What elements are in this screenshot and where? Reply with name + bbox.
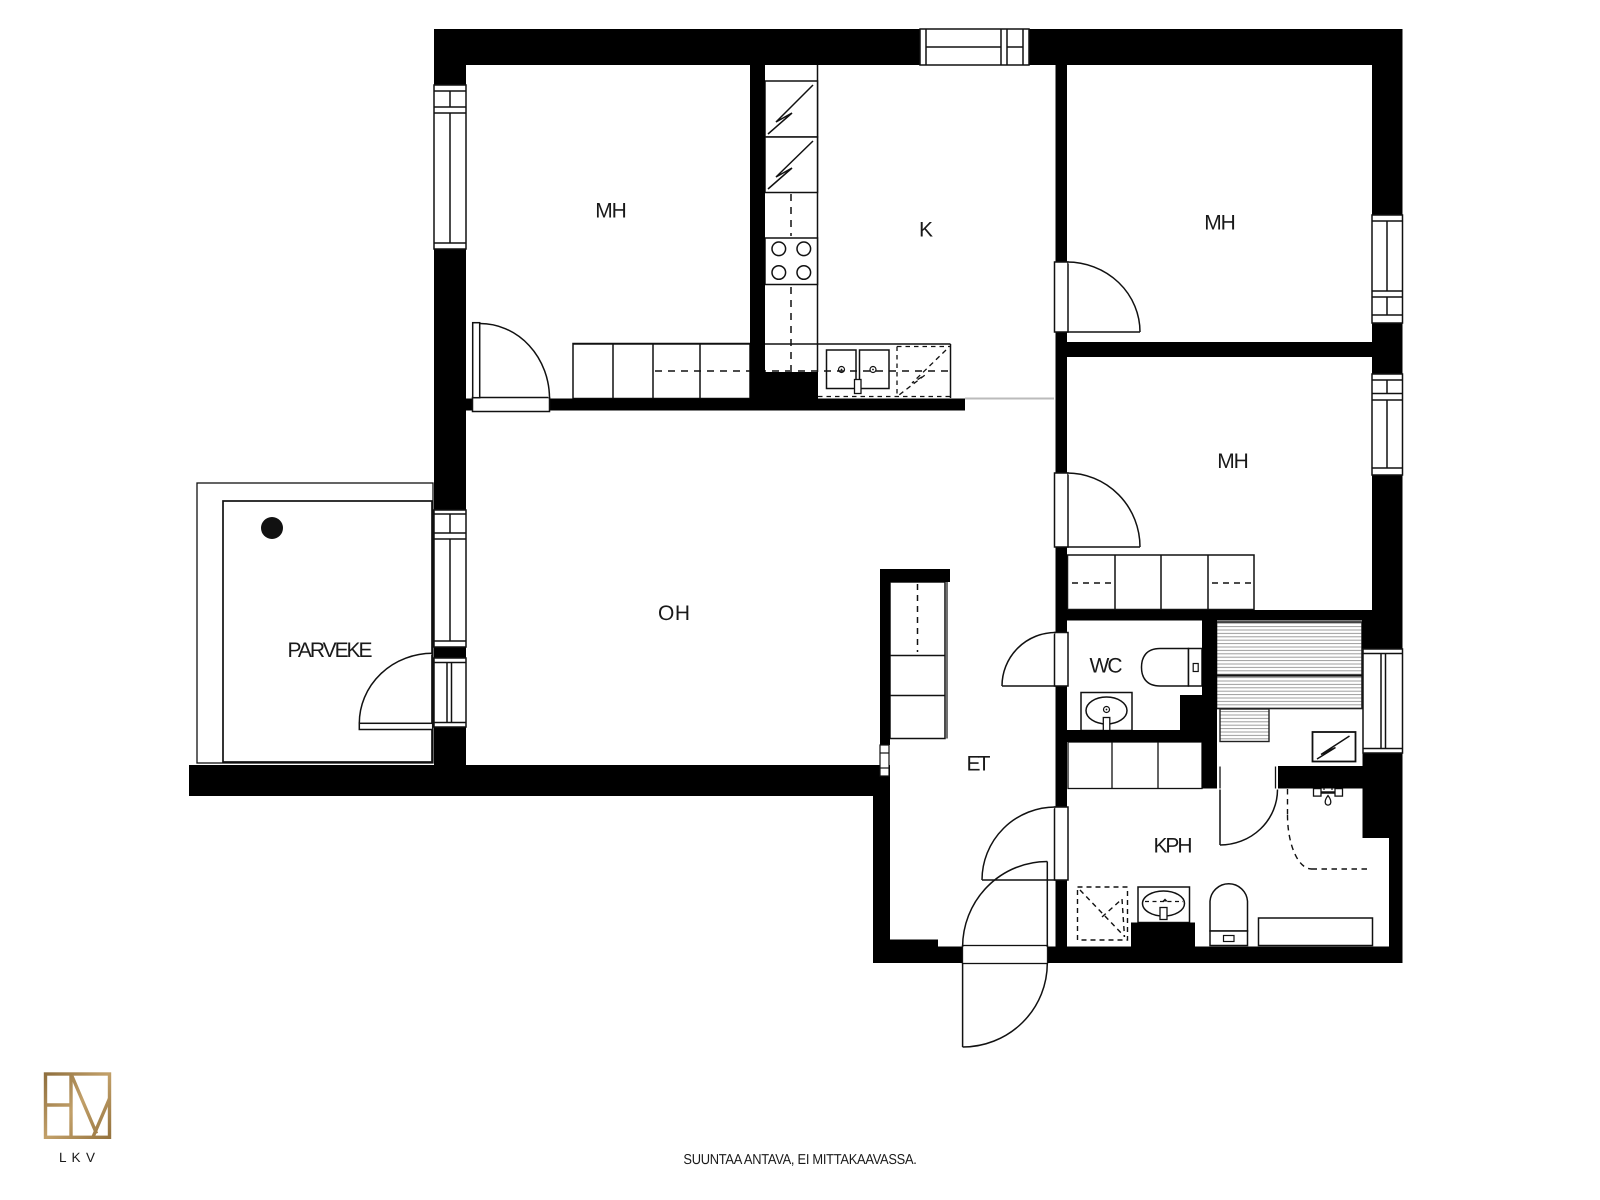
svg-text:MH: MH: [1217, 450, 1249, 473]
svg-text:PARVEKE: PARVEKE: [288, 639, 373, 662]
svg-text:WC: WC: [1090, 655, 1123, 678]
svg-text:KPH: KPH: [1154, 835, 1193, 858]
svg-text:ET: ET: [967, 753, 991, 776]
svg-text:SUUNTAA ANTAVA, EI MITTAKAAVAS: SUUNTAA ANTAVA, EI MITTAKAAVASSA.: [683, 1152, 916, 1168]
svg-text:MH: MH: [595, 200, 627, 223]
svg-text:K: K: [919, 219, 933, 242]
svg-text:L K V: L K V: [59, 1150, 95, 1165]
svg-text:OH: OH: [658, 602, 690, 625]
svg-text:MH: MH: [1204, 212, 1236, 235]
